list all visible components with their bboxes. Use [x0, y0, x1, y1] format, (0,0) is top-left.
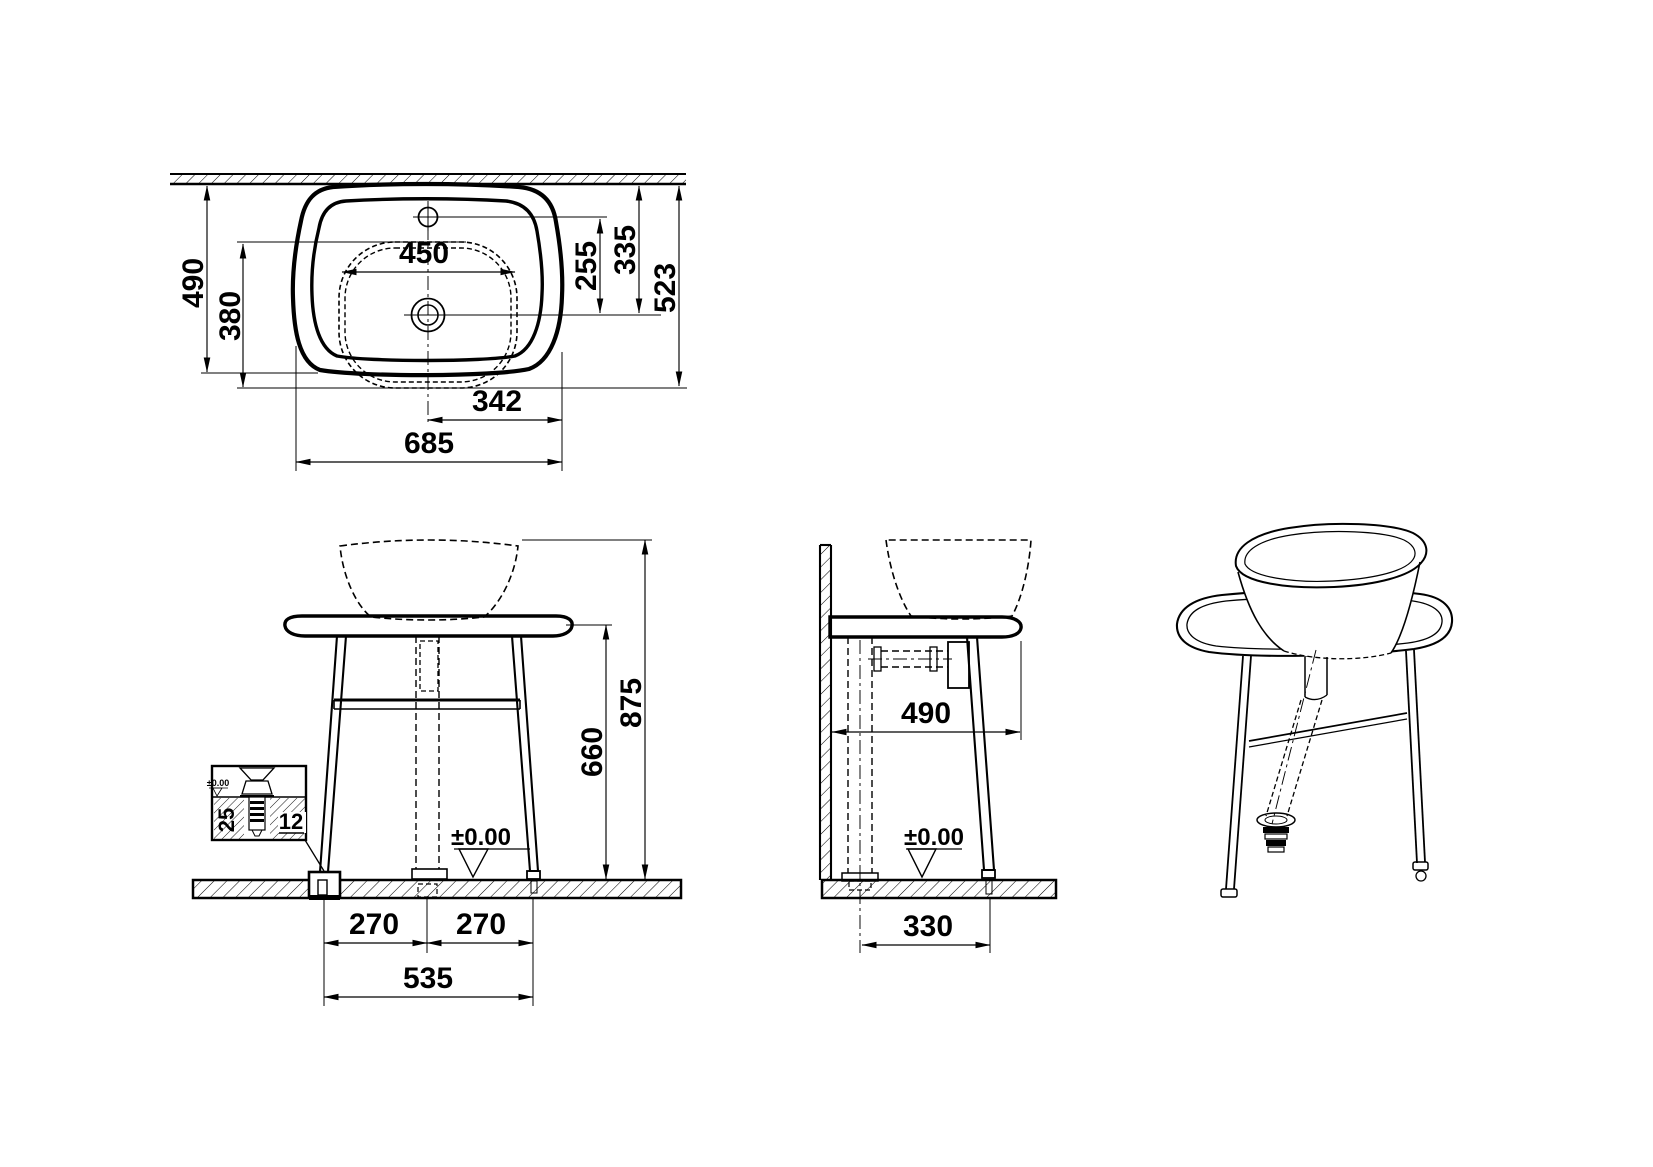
front-width-dimensions: 270 270 535 — [324, 899, 533, 1006]
floor-anchor-foot — [309, 872, 340, 900]
floor-level-label: ±0.00 — [451, 824, 511, 851]
iso-crossbar — [1249, 713, 1407, 747]
plan-dimensions: 490 380 450 255 335 523 342 685 — [177, 186, 682, 462]
detail-anchor-bolt — [249, 797, 265, 836]
detail-embed-depth-label: 25 — [214, 808, 239, 832]
dim-tray-width: 450 — [399, 237, 449, 270]
dim-leg-span: 535 — [403, 962, 453, 995]
plan-view: 490 380 450 255 335 523 342 685 — [170, 174, 687, 471]
leg-bracket-trap — [948, 642, 969, 688]
drain-plumbing-side — [842, 637, 952, 953]
dim-wall-to-basin-front: 490 — [177, 258, 210, 308]
basin-inner-outline — [312, 199, 542, 361]
technical-drawing-page: 490 380 450 255 335 523 342 685 — [0, 0, 1653, 1167]
detail-bolt-size-label: 12 — [279, 809, 303, 834]
dim-center-to-edge: 342 — [472, 385, 522, 418]
dim-overall-height: 875 — [615, 678, 648, 728]
dim-stand-height: 660 — [576, 727, 609, 777]
bowl-side-outline — [886, 540, 1031, 619]
washbasin-dimension-drawing: 490 380 450 255 335 523 342 685 — [0, 0, 1653, 1167]
drain-pipe-front — [412, 636, 447, 897]
dim-tray-depth: 380 — [214, 291, 247, 341]
iso-right-leg — [1406, 650, 1428, 881]
side-view: 490 ±0.00 330 — [820, 540, 1056, 953]
anchor-detail-callout: 25 12 ±0.00 — [207, 766, 324, 871]
crossbar-front — [334, 700, 520, 709]
floor-level-symbol-front: ±0.00 — [451, 824, 530, 877]
isometric-view — [1177, 524, 1452, 897]
front-view: ±0.00 660 875 270 270 535 — [193, 540, 681, 1006]
floor-level-symbol-side: ±0.00 — [904, 824, 964, 877]
dim-wall-to-front-edge: 523 — [649, 263, 682, 313]
dim-depth: 490 — [901, 697, 951, 730]
dim-drain-to-leg: 330 — [903, 910, 953, 943]
dim-faucet-to-drain: 255 — [570, 241, 603, 291]
detail-floor-level-label: ±0.00 — [207, 778, 229, 788]
floor-section-side — [822, 880, 1056, 898]
front-leg-side — [967, 637, 994, 870]
iso-drain-pipe — [1257, 650, 1327, 852]
front-height-dimensions: 660 875 — [522, 540, 652, 879]
left-leg-front — [320, 636, 346, 872]
tabletop-front — [285, 616, 572, 636]
dim-leg-offset-left: 270 — [349, 908, 399, 941]
iso-left-leg — [1221, 656, 1251, 897]
tabletop-side — [830, 617, 1021, 637]
side-bottom-dimension: 330 — [862, 899, 990, 953]
dim-wall-to-drain: 335 — [609, 225, 642, 275]
iso-bowl — [1236, 524, 1427, 659]
floor-section-front — [193, 880, 681, 898]
dim-overall-width: 685 — [404, 427, 454, 460]
right-leg-front — [512, 636, 538, 871]
dim-leg-offset-right: 270 — [456, 908, 506, 941]
bowl-front-outline — [340, 540, 518, 620]
floor-level-label-side: ±0.00 — [904, 824, 964, 851]
wall-section-side — [820, 545, 831, 880]
